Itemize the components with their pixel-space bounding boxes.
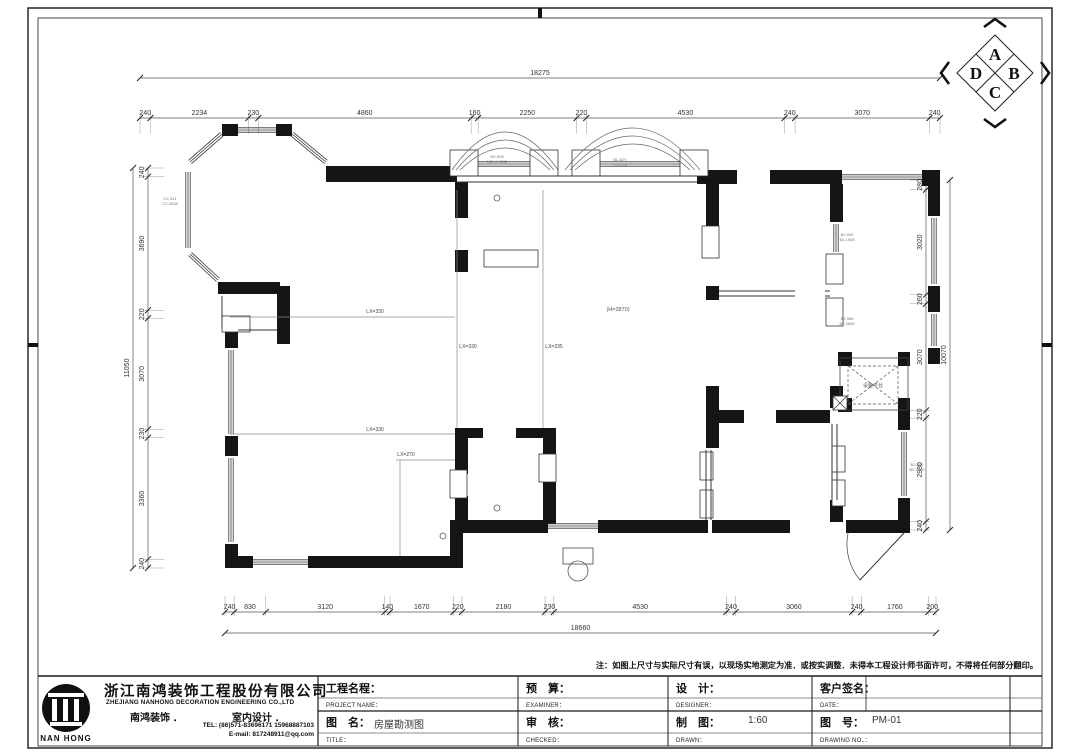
floor-plan-canvas: 2402234230486016022502204530240307024018… [0, 0, 1080, 756]
svg-text:830: 830 [244, 604, 256, 611]
dim-chain-bottom: 2408303120140167022021802304530240306024… [222, 596, 939, 636]
svg-text:3690: 3690 [139, 236, 146, 252]
svg-text:B2-2836: B2-2836 [839, 321, 855, 326]
drawing-sheet: 2402234230486016022502204530240307024018… [0, 0, 1080, 756]
svg-text:2180: 2180 [496, 604, 512, 611]
plan-partitions [222, 176, 908, 564]
svg-text:240: 240 [139, 166, 146, 178]
svg-text:C2-3038: C2-3038 [162, 201, 178, 206]
svg-text:B2-2890: B2-2890 [909, 467, 925, 472]
svg-text:设备平台: 设备平台 [863, 382, 883, 389]
svg-text:3070: 3070 [139, 366, 146, 382]
svg-text:10070: 10070 [941, 345, 948, 365]
svg-text:4860: 4860 [357, 110, 373, 117]
svg-text:220: 220 [576, 110, 588, 117]
svg-text:D: D [970, 64, 982, 83]
svg-text:LX=270: LX=270 [397, 452, 415, 458]
svg-text:240: 240 [851, 604, 863, 611]
compass-rose: ABCD [941, 19, 1049, 127]
svg-text:18275: 18275 [530, 70, 550, 77]
svg-text:3360: 3360 [139, 491, 146, 507]
svg-text:230: 230 [247, 110, 259, 117]
svg-text:260: 260 [917, 293, 924, 305]
title-block-grid [38, 676, 1042, 746]
svg-text:1760: 1760 [887, 604, 903, 611]
svg-text:B2-1506: B2-1506 [839, 237, 855, 242]
svg-text:240: 240 [784, 110, 796, 117]
svg-text:B: B [1008, 64, 1019, 83]
svg-text:140: 140 [381, 604, 393, 611]
svg-text:LX=335: LX=335 [545, 344, 563, 350]
plan-labels: C2-341C2-3038BX-908MD-W-C35BL-82YLT-3228… [162, 154, 925, 472]
svg-text:200: 200 [926, 604, 938, 611]
svg-text:18660: 18660 [571, 625, 591, 632]
svg-text:240: 240 [725, 604, 737, 611]
svg-text:3060: 3060 [786, 604, 802, 611]
svg-text:2234: 2234 [192, 110, 208, 117]
svg-text:3070: 3070 [917, 349, 924, 365]
svg-text:230: 230 [139, 428, 146, 440]
svg-text:220: 220 [139, 308, 146, 320]
svg-text:240: 240 [139, 110, 151, 117]
svg-text:11050: 11050 [124, 358, 131, 377]
svg-text:3020: 3020 [917, 234, 924, 250]
svg-text:3120: 3120 [317, 604, 333, 611]
svg-text:240: 240 [224, 604, 236, 611]
svg-text:240: 240 [139, 558, 146, 570]
svg-text:220: 220 [917, 408, 924, 420]
svg-text:4530: 4530 [632, 604, 648, 611]
svg-text:4530: 4530 [678, 110, 694, 117]
svg-text:160: 160 [469, 110, 481, 117]
svg-text:240: 240 [929, 110, 941, 117]
svg-text:LT-3228: LT-3228 [613, 162, 628, 167]
plan-walls [218, 124, 940, 568]
svg-text:230: 230 [544, 604, 556, 611]
svg-text:LX=330: LX=330 [459, 344, 477, 350]
sheet-frame [28, 8, 1052, 748]
svg-text:C: C [989, 83, 1001, 102]
dim-chain-left: 24036902203070230336024011050 [124, 165, 164, 571]
svg-text:220: 220 [452, 604, 464, 611]
svg-text:240: 240 [917, 520, 924, 532]
svg-text:3070: 3070 [855, 110, 871, 117]
svg-text:1670: 1670 [414, 604, 430, 611]
svg-text:LX=330: LX=330 [366, 309, 384, 315]
svg-text:2250: 2250 [520, 110, 536, 117]
svg-text:MD-W-C35: MD-W-C35 [487, 159, 508, 164]
svg-text:A: A [989, 45, 1002, 64]
svg-text:(H=2870): (H=2870) [606, 307, 629, 313]
dim-chain-top: 2402234230486016022502204530240307024018… [137, 70, 943, 134]
svg-text:LX=330: LX=330 [366, 427, 384, 433]
